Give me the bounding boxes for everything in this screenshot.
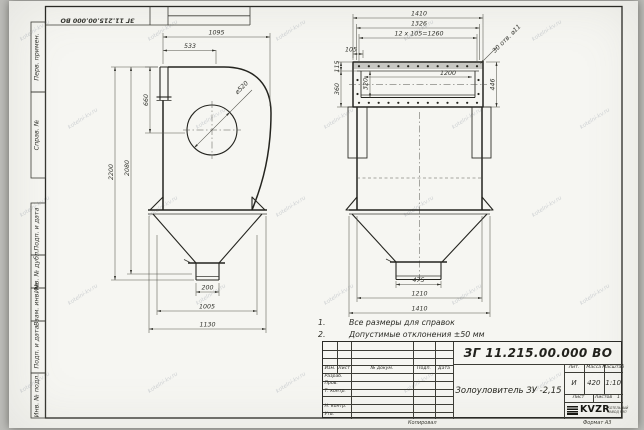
tb-row-razrab: Разраб.: [323, 373, 351, 381]
title-block: Изм. Лист № докум. Подп. Дата Разраб. Пр…: [322, 341, 622, 418]
dim-front-115: 115: [334, 60, 341, 72]
note-2-number: 2.: [318, 330, 325, 339]
dim-side-1005: 1005: [199, 304, 215, 311]
tb-mass-label: Масса: [584, 364, 604, 372]
tb-col-podp: Подп.: [413, 365, 435, 373]
kvzr-logo-text: KVZR: [580, 404, 610, 415]
dim-side-533: 533: [184, 43, 196, 50]
tb-sheets-label: Листов: [593, 394, 614, 402]
stamp-podp-data-1: Подп. и дата: [34, 207, 41, 250]
dim-front-1326: 1326: [411, 21, 427, 28]
dim-side-d520: ⌀520: [234, 80, 250, 96]
tb-row-nkontr: Н. контр.: [323, 404, 351, 412]
dim-side-1130: 1130: [199, 322, 215, 329]
tb-row-tkontr: Т. контр.: [323, 389, 351, 397]
tb-sheets-value: 1: [614, 394, 623, 402]
tb-doc-number: ЗГ 11.215.00.000 ВО: [453, 342, 623, 364]
dim-front-1410-bot: 1410: [411, 306, 427, 313]
drawing-photo: { "watermark": "kotelni-kv.ru", "frame":…: [0, 0, 644, 430]
dim-front-320: 320: [363, 78, 370, 90]
note-2-text: Допустимые отклонения ±50 мм: [349, 330, 484, 339]
side-view: ⌀520 1095 533 660 2200 2080 200: [108, 30, 271, 334]
dim-side-660: 660: [143, 94, 150, 106]
dim-front-1210: 1210: [411, 291, 427, 298]
tb-mass-value: 420: [584, 372, 604, 394]
dim-front-1410-top: 1410: [411, 11, 427, 18]
kvzr-logo-icon: [567, 406, 578, 415]
tb-lit-value: И: [564, 372, 584, 394]
dim-front-475: 475: [412, 277, 424, 284]
tb-row-utv: Утв.: [323, 412, 351, 420]
dim-side-200: 200: [201, 285, 213, 292]
kvzr-logo-subtext-line2: ЗАВОД РЭП: [608, 410, 629, 414]
tb-col-list: Лист: [337, 365, 351, 373]
dim-front-12x105: 12 х 105=1260: [394, 31, 443, 38]
format-label: Формат А3: [583, 420, 611, 426]
dim-front-1200: 1200: [440, 70, 456, 77]
tb-scale-value: 1:10: [604, 372, 624, 394]
tb-sheet-label: Лист: [564, 394, 593, 402]
dim-side-1095: 1095: [208, 30, 224, 37]
tb-col-data: Дата: [435, 365, 453, 373]
dim-side-2080: 2080: [124, 160, 131, 176]
stamp-podp-data-2: Подп. и дата: [34, 325, 41, 368]
tb-lit-label: Лит.: [564, 364, 584, 372]
stamp-sprav-no: Справ. №: [34, 119, 41, 150]
dim-front-holes: 30 отв. ⌀11: [491, 23, 522, 54]
tb-col-doc: № докум.: [351, 365, 413, 373]
front-view: 1200 320 115 360 105 1410 1326 12 х 105=…: [334, 11, 523, 318]
dim-front-105: 105: [345, 46, 357, 53]
tb-product-name: Золоуловитель ЗУ -2,15: [453, 364, 564, 419]
dim-front-446: 446: [489, 78, 496, 90]
dim-side-2200: 2200: [108, 164, 115, 180]
stamp-perv-primen: Перв. примен.: [34, 33, 41, 80]
corner-doc-number: ЗГ 11.215.00.000 ВО: [60, 16, 135, 23]
tb-row-prov: Пров.: [323, 381, 351, 389]
note-1-number: 1.: [318, 318, 325, 327]
note-1-text: Все размеры для справок: [349, 318, 455, 327]
tb-scale-label: Масштаб: [604, 364, 624, 372]
stamp-inv-podl: Инв. № подл.: [34, 374, 41, 417]
kvzr-logo-subtext: КОТЕЛЬНЫЙ ЗАВОД РЭП: [608, 406, 629, 415]
tb-col-izm: Изм.: [323, 365, 337, 373]
stamp-vzam-inv: Взам. инв. №: [34, 283, 41, 326]
dim-front-360: 360: [334, 83, 341, 95]
copied-label: Копировал: [408, 420, 437, 426]
